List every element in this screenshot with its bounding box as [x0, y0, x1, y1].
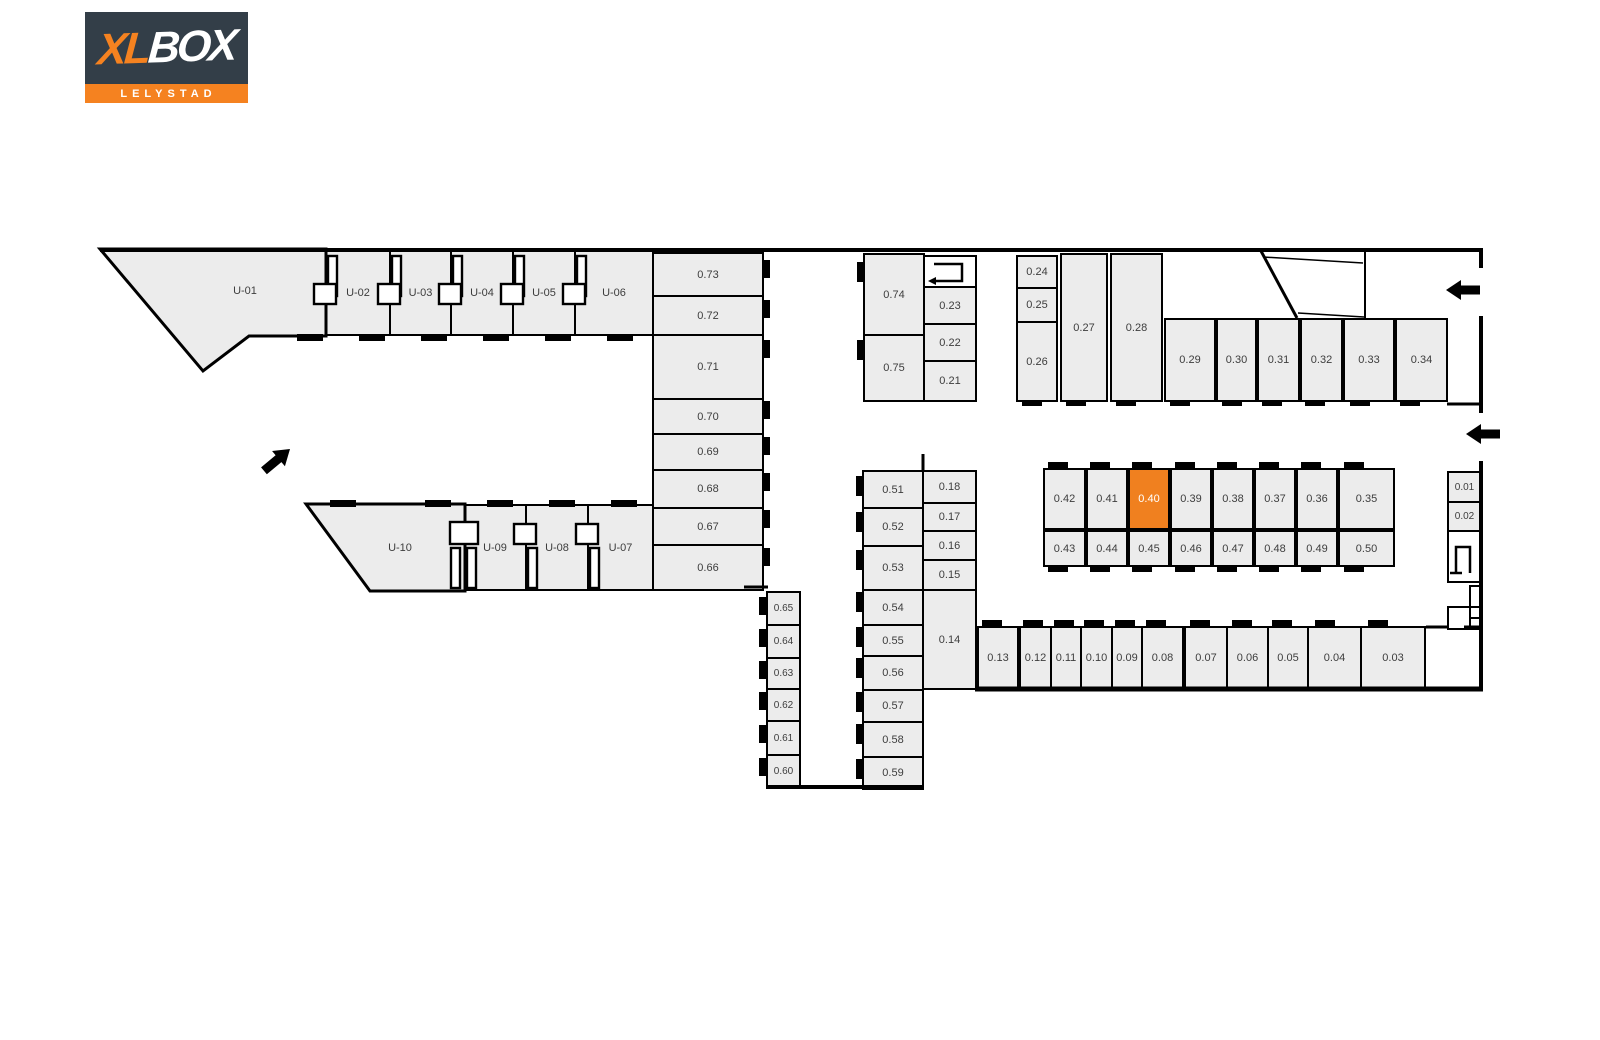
unit-U-04[interactable]: U-04 [450, 250, 514, 336]
unit-0.53[interactable]: 0.53 [862, 545, 924, 591]
unit-0.33[interactable]: 0.33 [1343, 318, 1395, 402]
door-opening-tick [425, 500, 451, 507]
stairwell-top [923, 255, 977, 288]
unit-U-03[interactable]: U-03 [389, 250, 452, 336]
unit-0.16[interactable]: 0.16 [922, 530, 977, 561]
unit-0.23[interactable]: 0.23 [923, 286, 977, 325]
door-opening-tick [759, 758, 766, 776]
entrance-arrow-icon [1446, 280, 1480, 300]
unit-0.38[interactable]: 0.38 [1212, 468, 1254, 530]
door-opening-tick [763, 548, 770, 566]
unit-0.08[interactable]: 0.08 [1141, 626, 1184, 690]
door-opening-tick [759, 597, 766, 615]
unit-U-05[interactable]: U-05 [512, 250, 576, 336]
unit-0.74[interactable]: 0.74 [863, 253, 925, 336]
unit-0.27[interactable]: 0.27 [1060, 253, 1108, 402]
unit-0.68[interactable]: 0.68 [652, 469, 764, 509]
wall [1298, 313, 1364, 317]
door-opening-tick [763, 473, 770, 491]
unit-0.58[interactable]: 0.58 [862, 721, 924, 758]
unit-0.04[interactable]: 0.04 [1307, 626, 1362, 690]
unit-0.35[interactable]: 0.35 [1338, 468, 1395, 530]
wall [1263, 257, 1363, 263]
unit-U-10-label: U-10 [388, 542, 412, 554]
logo-subtitle: LELYSTAD [85, 84, 248, 103]
unit-U-07[interactable]: U-07 [587, 504, 654, 591]
unit-U-01-shape[interactable] [100, 249, 326, 371]
unit-0.52[interactable]: 0.52 [862, 507, 924, 547]
door-opening-tick [763, 401, 770, 419]
logo-wordmark: XLBOX [85, 12, 248, 84]
unit-0.12[interactable]: 0.12 [1019, 626, 1052, 690]
unit-0.07[interactable]: 0.07 [1184, 626, 1228, 690]
unit-0.14[interactable]: 0.14 [922, 589, 977, 690]
unit-0.63[interactable]: 0.63 [766, 657, 801, 690]
unit-0.26[interactable]: 0.26 [1016, 321, 1058, 402]
door-opening-tick [759, 692, 766, 710]
door-opening-tick [330, 500, 356, 507]
door-opening-tick [297, 334, 323, 341]
unit-0.72[interactable]: 0.72 [652, 295, 764, 336]
unit-0.57[interactable]: 0.57 [862, 689, 924, 723]
unit-0.05[interactable]: 0.05 [1267, 626, 1309, 690]
unit-0.28[interactable]: 0.28 [1110, 253, 1163, 402]
unit-0.54[interactable]: 0.54 [862, 589, 924, 626]
unit-0.34[interactable]: 0.34 [1395, 318, 1448, 402]
utility-d [1469, 617, 1482, 630]
unit-0.55[interactable]: 0.55 [862, 624, 924, 657]
stairwell-right [1447, 530, 1482, 583]
unit-0.49[interactable]: 0.49 [1296, 530, 1338, 567]
unit-0.45[interactable]: 0.45 [1128, 530, 1170, 567]
xlbox-logo[interactable]: XLBOX LELYSTAD [85, 12, 248, 103]
unit-0.44[interactable]: 0.44 [1086, 530, 1128, 567]
unit-0.40[interactable]: 0.40 [1128, 468, 1170, 530]
unit-U-06[interactable]: U-06 [574, 250, 654, 336]
logo-box-text: BOX [147, 21, 237, 73]
unit-U-02[interactable]: U-02 [325, 250, 391, 336]
unit-0.67[interactable]: 0.67 [652, 507, 764, 546]
unit-0.50[interactable]: 0.50 [1338, 530, 1395, 567]
unit-0.17[interactable]: 0.17 [922, 502, 977, 532]
wall [1261, 251, 1297, 318]
unit-0.60[interactable]: 0.60 [766, 754, 801, 789]
unit-0.73[interactable]: 0.73 [652, 252, 764, 297]
entrance-arrow-icon [258, 441, 297, 478]
unit-0.64[interactable]: 0.64 [766, 624, 801, 659]
unit-0.51[interactable]: 0.51 [862, 470, 924, 509]
unit-0.46[interactable]: 0.46 [1170, 530, 1212, 567]
utility-a [1469, 585, 1482, 608]
unit-0.66[interactable]: 0.66 [652, 544, 764, 591]
unit-0.29[interactable]: 0.29 [1164, 318, 1216, 402]
unit-0.25[interactable]: 0.25 [1016, 287, 1058, 323]
unit-0.30[interactable]: 0.30 [1216, 318, 1257, 402]
door-opening-tick [763, 260, 770, 278]
unit-0.47[interactable]: 0.47 [1212, 530, 1254, 567]
unit-U-10-shape[interactable] [306, 504, 465, 591]
unit-0.56[interactable]: 0.56 [862, 655, 924, 691]
unit-0.39[interactable]: 0.39 [1170, 468, 1212, 530]
unit-U-08[interactable]: U-08 [525, 504, 589, 591]
unit-0.18[interactable]: 0.18 [922, 470, 977, 504]
door-opening-tick [763, 510, 770, 528]
unit-0.22[interactable]: 0.22 [923, 323, 977, 362]
unit-0.69[interactable]: 0.69 [652, 433, 764, 471]
unit-0.03[interactable]: 0.03 [1360, 626, 1426, 690]
door-opening-tick [763, 340, 770, 358]
unit-0.65[interactable]: 0.65 [766, 591, 801, 626]
unit-0.42[interactable]: 0.42 [1043, 468, 1086, 530]
unit-0.37[interactable]: 0.37 [1254, 468, 1296, 530]
utility-b [1447, 606, 1471, 630]
unit-0.75[interactable]: 0.75 [863, 334, 925, 402]
unit-0.43[interactable]: 0.43 [1043, 530, 1086, 567]
unit-U-09[interactable]: U-09 [463, 504, 527, 591]
unit-0.15[interactable]: 0.15 [922, 559, 977, 591]
entrance-arrow-icon [1466, 424, 1500, 444]
door-opening-tick [763, 437, 770, 455]
door-opening-tick [759, 629, 766, 647]
unit-0.24[interactable]: 0.24 [1016, 255, 1058, 289]
floor-plan-canvas: XLBOX LELYSTAD U-02U-03U-04U-05U-06U-09U… [0, 0, 1600, 1040]
unit-0.09[interactable]: 0.09 [1111, 626, 1143, 690]
unit-0.21[interactable]: 0.21 [923, 360, 977, 402]
unit-0.32[interactable]: 0.32 [1300, 318, 1343, 402]
unit-0.11[interactable]: 0.11 [1050, 626, 1082, 690]
door-opening-tick [763, 300, 770, 318]
unit-0.70[interactable]: 0.70 [652, 398, 764, 435]
unit-0.06[interactable]: 0.06 [1226, 626, 1269, 690]
unit-0.41[interactable]: 0.41 [1086, 468, 1128, 530]
unit-0.48[interactable]: 0.48 [1254, 530, 1296, 567]
door-opening-tick [759, 725, 766, 743]
unit-0.61[interactable]: 0.61 [766, 720, 801, 756]
unit-0.02[interactable]: 0.02 [1447, 501, 1482, 532]
unit-0.59[interactable]: 0.59 [862, 756, 924, 790]
unit-0.36[interactable]: 0.36 [1296, 468, 1338, 530]
door-opening-tick [759, 661, 766, 679]
logo-word: XLBOX [96, 24, 236, 73]
unit-0.13[interactable]: 0.13 [977, 626, 1019, 690]
unit-0.10[interactable]: 0.10 [1080, 626, 1113, 690]
unit-0.71[interactable]: 0.71 [652, 334, 764, 400]
unit-U-01-label: U-01 [233, 285, 257, 297]
door-icon [451, 548, 460, 588]
logo-xl-text: XL [96, 24, 150, 75]
unit-0.62[interactable]: 0.62 [766, 688, 801, 722]
unit-0.01[interactable]: 0.01 [1447, 471, 1482, 503]
unit-0.31[interactable]: 0.31 [1257, 318, 1300, 402]
